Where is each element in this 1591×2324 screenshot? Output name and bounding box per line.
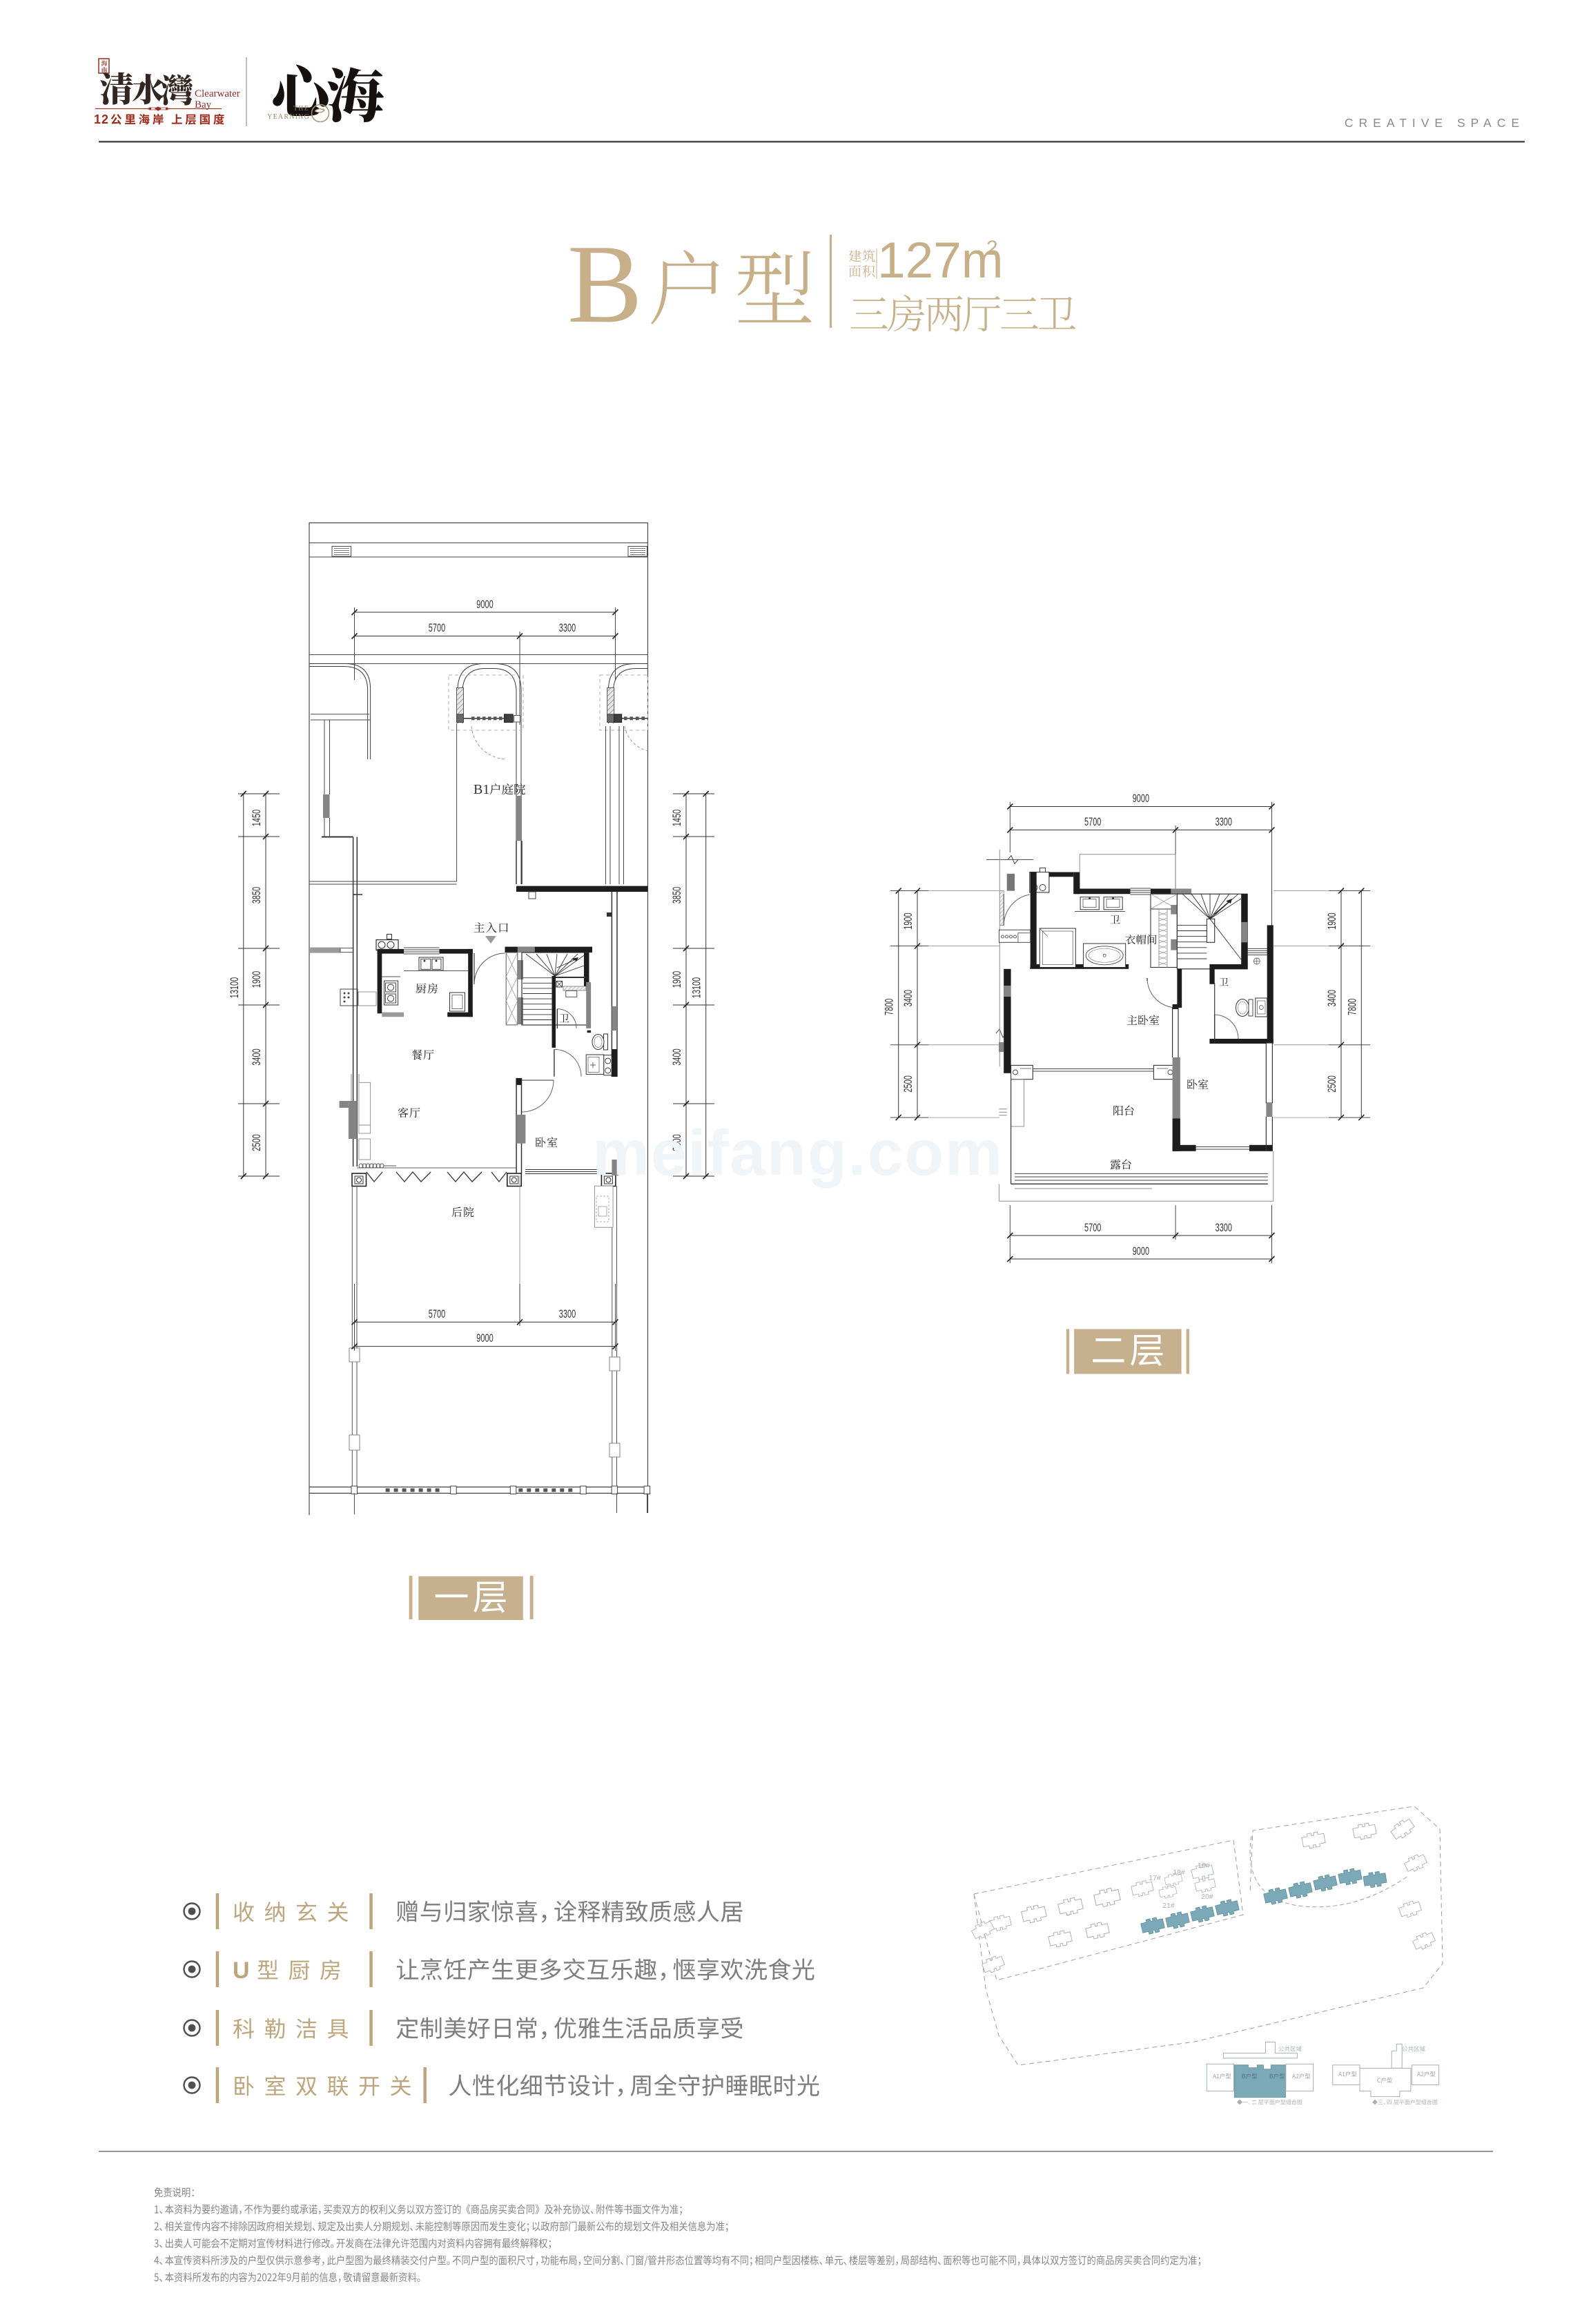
svg-text:YEARNING: YEARNING — [267, 113, 310, 121]
svg-text:3300: 3300 — [559, 1308, 576, 1320]
svg-text:9000: 9000 — [1133, 792, 1149, 805]
svg-text:7800: 7800 — [1346, 999, 1358, 1015]
svg-text:9000: 9000 — [1133, 1245, 1149, 1258]
svg-text:1450: 1450 — [251, 810, 263, 826]
svg-text:9000: 9000 — [476, 598, 493, 611]
svg-text:3850: 3850 — [251, 887, 263, 904]
svg-text:13100: 13100 — [691, 977, 703, 999]
svg-text:3300: 3300 — [559, 622, 576, 634]
svg-text:B1: B1 — [474, 782, 489, 797]
svg-text:2: 2 — [986, 237, 998, 260]
svg-text:3400: 3400 — [671, 1048, 683, 1065]
svg-text:3400: 3400 — [251, 1048, 263, 1065]
svg-text:9000: 9000 — [476, 1332, 493, 1345]
svg-text:2500: 2500 — [1326, 1075, 1338, 1092]
svg-text:18#: 18# — [1173, 1868, 1185, 1877]
svg-text:CREATIVE SPACE: CREATIVE SPACE — [1345, 116, 1525, 130]
svg-text:5700: 5700 — [429, 622, 445, 634]
svg-text:5700: 5700 — [429, 1308, 445, 1320]
svg-text:17#: 17# — [1149, 1874, 1161, 1882]
svg-text:3400: 3400 — [902, 990, 915, 1006]
svg-text:2500: 2500 — [902, 1075, 915, 1092]
svg-text:1900: 1900 — [1326, 912, 1338, 929]
svg-text:B: B — [567, 222, 643, 346]
svg-text:Clearwater: Clearwater — [195, 88, 240, 99]
svg-text:3300: 3300 — [1216, 816, 1232, 828]
svg-text:3850: 3850 — [671, 887, 683, 904]
svg-text:U: U — [233, 1957, 250, 1984]
svg-text:5700: 5700 — [1084, 816, 1101, 828]
svg-text:3400: 3400 — [1326, 990, 1338, 1006]
svg-text:meifang.com: meifang.com — [592, 1117, 1004, 1189]
svg-text:127m: 127m — [877, 233, 1004, 289]
svg-text:21#: 21# — [1162, 1902, 1175, 1910]
svg-text:1900: 1900 — [251, 971, 263, 988]
svg-text:19#: 19# — [1198, 1862, 1210, 1870]
svg-text:1450: 1450 — [671, 810, 683, 826]
svg-text:5700: 5700 — [1084, 1222, 1101, 1234]
svg-text:7800: 7800 — [884, 999, 896, 1015]
svg-text:20#: 20# — [1201, 1893, 1213, 1901]
svg-text:3300: 3300 — [1216, 1222, 1232, 1234]
svg-text:12: 12 — [94, 113, 109, 126]
svg-text:1900: 1900 — [671, 971, 683, 988]
svg-text:THE: THE — [293, 105, 309, 113]
svg-text:13100: 13100 — [228, 977, 241, 999]
svg-text:1900: 1900 — [902, 912, 915, 929]
svg-text:2500: 2500 — [251, 1134, 263, 1151]
